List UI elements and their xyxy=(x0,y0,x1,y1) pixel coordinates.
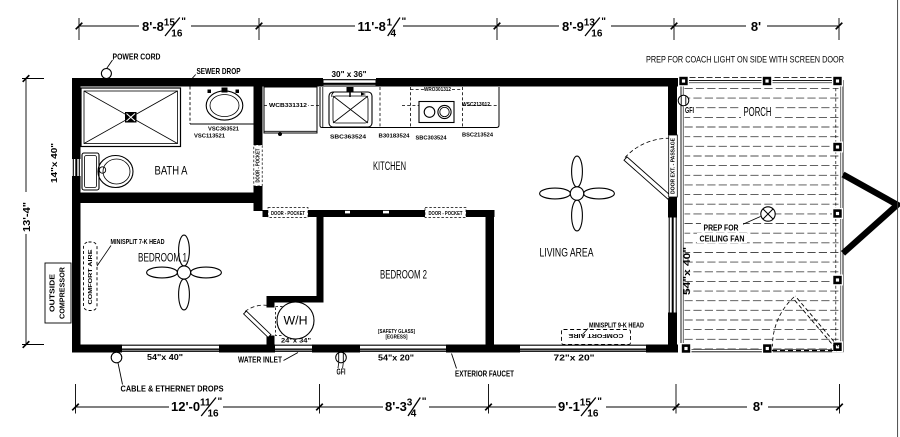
svg-text:VSC363521: VSC363521 xyxy=(208,127,239,133)
svg-text:CEILING FAN: CEILING FAN xyxy=(700,234,745,244)
svg-text:DOOR - POCKET: DOOR - POCKET xyxy=(429,211,463,217)
svg-text:OUTSIDE: OUTSIDE xyxy=(50,274,57,312)
svg-text:14"x 40": 14"x 40" xyxy=(50,143,59,183)
svg-text:30" x 36": 30" x 36" xyxy=(332,70,367,79)
svg-text:KITCHEN: KITCHEN xyxy=(373,161,406,173)
svg-text:GFI: GFI xyxy=(337,368,346,377)
svg-text:16: 16 xyxy=(171,29,183,40)
svg-text:MINISPLIT 7-K HEAD: MINISPLIT 7-K HEAD xyxy=(111,239,165,246)
svg-text:4: 4 xyxy=(391,29,397,40)
svg-text:SBC303524: SBC303524 xyxy=(416,136,448,142)
svg-text:PREP FOR COACH LIGHT ON SIDE W: PREP FOR COACH LIGHT ON SIDE WITH SCREEN… xyxy=(646,55,844,66)
svg-text:54"x 40": 54"x 40" xyxy=(147,353,183,362)
svg-text:POWER CORD: POWER CORD xyxy=(113,52,161,62)
svg-text:COMFORT AIRE: COMFORT AIRE xyxy=(568,332,623,338)
svg-text:8'-9: 8'-9 xyxy=(562,19,584,34)
svg-text:SEWER DROP: SEWER DROP xyxy=(197,66,241,76)
svg-text:CABLE & ETHERNET DROPS: CABLE & ETHERNET DROPS xyxy=(121,384,224,394)
svg-text:": " xyxy=(402,17,407,28)
svg-text:": " xyxy=(181,17,186,28)
svg-text:13'-4": 13'-4" xyxy=(21,202,33,232)
svg-text:DOOR EXT. - PASSAGE: DOOR EXT. - PASSAGE xyxy=(671,137,677,194)
svg-text:SBC363524: SBC363524 xyxy=(330,135,367,141)
svg-text:EXTERIOR FAUCET: EXTERIOR FAUCET xyxy=(455,369,515,379)
svg-text:13: 13 xyxy=(584,18,596,29)
svg-text:15: 15 xyxy=(580,398,592,409)
svg-text:DOOR - POCKET: DOOR - POCKET xyxy=(271,211,305,217)
svg-text:54"x 20": 54"x 20" xyxy=(378,354,414,363)
svg-text:8': 8' xyxy=(751,19,761,34)
svg-text:": " xyxy=(597,397,602,408)
svg-text:LIVING AREA: LIVING AREA xyxy=(540,248,594,260)
svg-text:": " xyxy=(601,17,606,28)
svg-text:GFI: GFI xyxy=(685,106,694,115)
svg-text:3: 3 xyxy=(407,398,413,409)
svg-text:MINISPLIT 9-K HEAD: MINISPLIT 9-K HEAD xyxy=(589,323,644,330)
svg-text:[EGRESS]: [EGRESS] xyxy=(386,335,408,341)
svg-text:72"x 20": 72"x 20" xyxy=(554,354,595,363)
svg-text:WRO301312: WRO301312 xyxy=(424,87,451,93)
svg-text:B30183524: B30183524 xyxy=(379,134,411,140)
svg-text:PREP FOR: PREP FOR xyxy=(704,223,739,233)
svg-text:16: 16 xyxy=(587,409,599,420)
svg-text:PORCH: PORCH xyxy=(744,104,772,119)
svg-text:DOOR - POCKET: DOOR - POCKET xyxy=(256,149,262,183)
svg-text:16: 16 xyxy=(208,409,220,420)
svg-text:VSC113521: VSC113521 xyxy=(194,134,225,140)
svg-text:8': 8' xyxy=(753,399,763,414)
svg-text:": " xyxy=(218,397,223,408)
svg-text:9'-1: 9'-1 xyxy=(558,399,580,414)
svg-text:WSC213012: WSC213012 xyxy=(462,102,490,108)
svg-text:COMPRESSOR: COMPRESSOR xyxy=(60,267,67,319)
svg-text:BEDROOM 2: BEDROOM 2 xyxy=(380,270,427,282)
svg-text:WCB331312: WCB331312 xyxy=(269,103,307,109)
svg-text:4: 4 xyxy=(411,409,417,420)
svg-text:16: 16 xyxy=(591,29,603,40)
svg-text:11'-8: 11'-8 xyxy=(358,19,386,34)
svg-text:BATH A: BATH A xyxy=(155,166,188,178)
svg-text:WATER INLET: WATER INLET xyxy=(238,355,283,365)
svg-text:8'-8: 8'-8 xyxy=(142,19,164,34)
svg-text:": " xyxy=(422,397,427,408)
svg-text:BSC213524: BSC213524 xyxy=(462,133,494,139)
svg-text:15: 15 xyxy=(164,18,176,29)
svg-text:W/H: W/H xyxy=(284,316,308,328)
svg-text:1: 1 xyxy=(387,18,393,29)
svg-text:COMFORT AIRE: COMFORT AIRE xyxy=(88,249,94,305)
svg-text:11: 11 xyxy=(200,398,211,409)
svg-text:12'-0: 12'-0 xyxy=(171,399,200,414)
svg-text:8'-3: 8'-3 xyxy=(385,399,407,414)
